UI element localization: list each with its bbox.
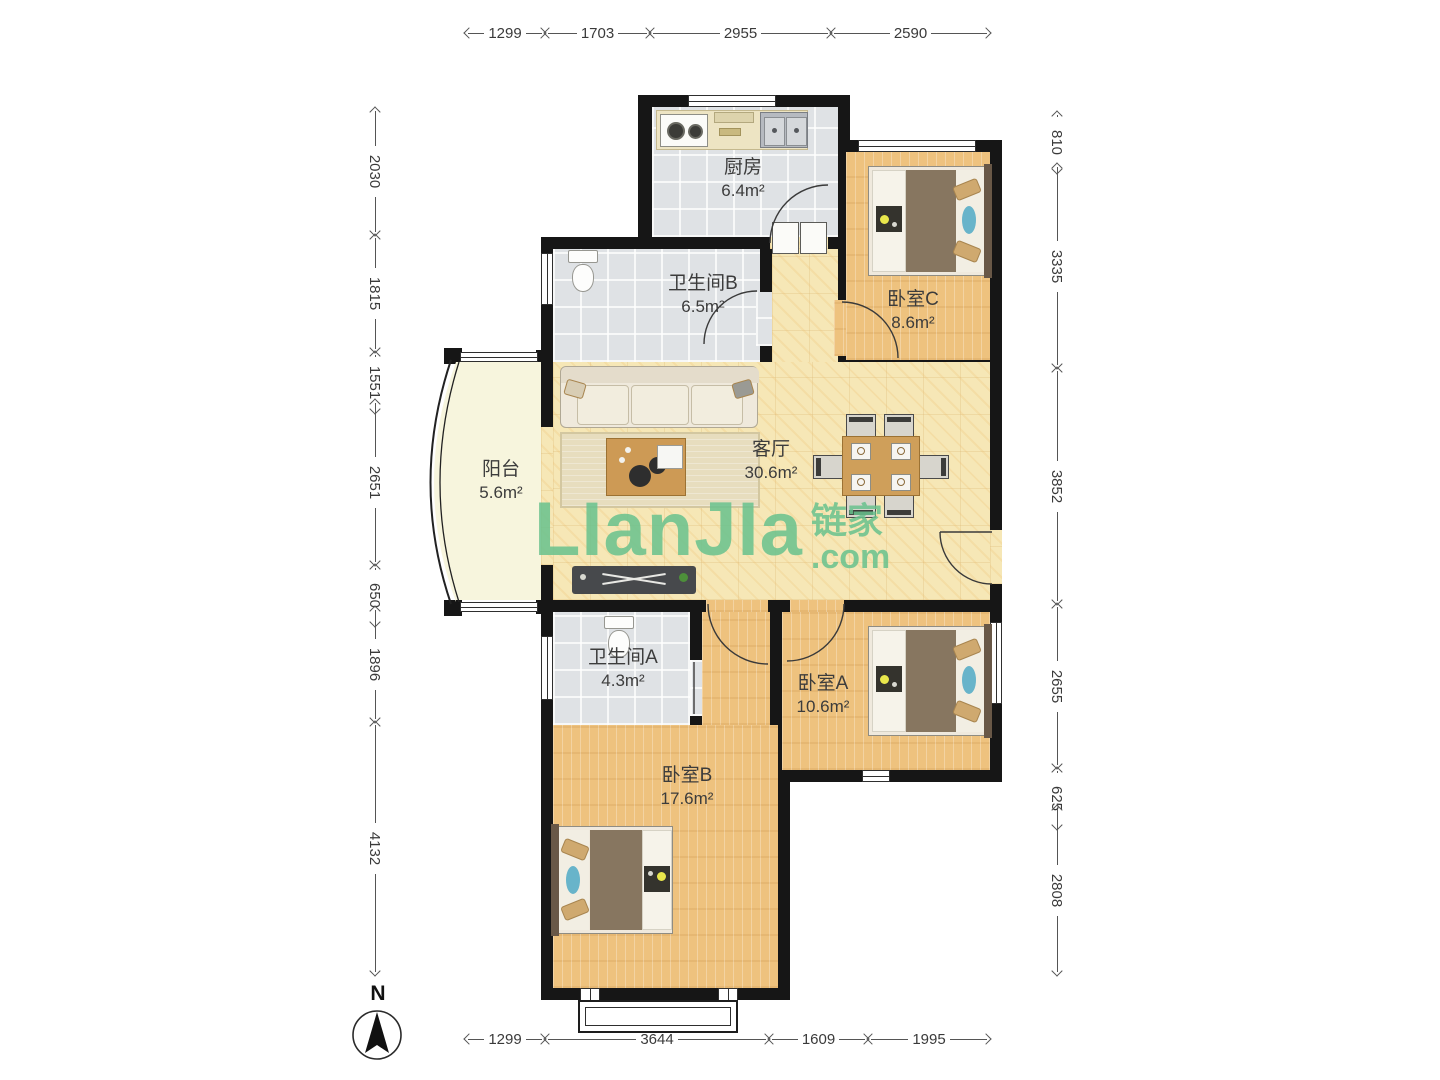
- arrow-down-icon: [369, 965, 380, 976]
- decor-dot: [880, 215, 889, 224]
- dim-value: 2030: [367, 155, 384, 188]
- room-label-bedroom-c: 卧室C 8.6m²: [858, 288, 968, 334]
- arrow-up-icon: [1051, 110, 1062, 121]
- decor-oval: [566, 866, 580, 894]
- sink-icon: [760, 112, 808, 148]
- door-gap: [834, 300, 846, 356]
- dim-value: 2651: [367, 466, 384, 499]
- room-area: 10.6m²: [768, 696, 878, 718]
- place-mat: [891, 474, 911, 491]
- arrow-up-icon: [1051, 804, 1062, 815]
- burner-icon: [688, 124, 703, 139]
- dim-line: [1057, 371, 1058, 461]
- burner-icon: [667, 122, 685, 140]
- room-label-bathroom-b: 卫生间B 6.5m²: [648, 272, 758, 318]
- dim-bottom-0: 1299: [465, 1032, 545, 1046]
- dim-right-4: 625: [1050, 768, 1064, 806]
- headboard: [984, 624, 992, 738]
- arrow-left-icon: [463, 27, 474, 38]
- stove-icon: [660, 114, 708, 147]
- room-area: 17.6m²: [632, 788, 742, 810]
- room-area: 4.3m²: [568, 670, 678, 692]
- dim-value: 2808: [1049, 874, 1066, 907]
- dim-right-5: 2808: [1050, 806, 1064, 975]
- arrow-up-icon: [1051, 162, 1062, 173]
- compass-north-label: N: [364, 982, 392, 1006]
- dim-line: [375, 874, 376, 972]
- dim-line: [1057, 292, 1058, 366]
- room-label-bathroom-a: 卫生间A 4.3m²: [568, 646, 678, 692]
- arrow-down-icon: [1051, 965, 1062, 976]
- watermark-tld: .com: [811, 540, 890, 574]
- dining-chair: [919, 455, 949, 479]
- dim-bottom-1: 3644: [545, 1032, 769, 1046]
- compass-circle: [353, 1011, 401, 1059]
- hall-floor: [702, 612, 770, 725]
- room-name: 卫生间A: [568, 646, 678, 670]
- arrow-up-icon: [369, 605, 380, 616]
- headboard: [984, 164, 992, 278]
- window: [862, 770, 890, 782]
- door-gap: [790, 600, 844, 612]
- headboard: [551, 824, 559, 936]
- dim-right-1: 3335: [1050, 164, 1064, 368]
- arrow-up-icon: [1051, 366, 1062, 377]
- bed-tray: [644, 866, 670, 892]
- dim-line: [1057, 916, 1058, 972]
- dim-value: 1995: [908, 1031, 949, 1048]
- dim-line: [653, 33, 720, 34]
- room-label-balcony: 阳台 5.6m²: [446, 458, 556, 504]
- dim-line: [375, 403, 376, 457]
- dining-chair: [884, 414, 914, 438]
- watermark-cjk: 链家: [811, 502, 890, 540]
- dim-value: 2655: [1049, 669, 1066, 702]
- toilet-icon: [568, 250, 598, 263]
- dim-left-2: 1551: [368, 352, 382, 400]
- dim-line: [1057, 512, 1058, 602]
- dim-value: 1299: [484, 25, 525, 42]
- dim-right-2: 3852: [1050, 368, 1064, 604]
- arrow-up-icon: [369, 106, 380, 117]
- wall: [536, 600, 553, 614]
- sofa: [560, 366, 758, 428]
- dim-value: 3644: [636, 1031, 677, 1048]
- toilet-icon: [572, 264, 594, 292]
- room-name: 客厅: [716, 438, 826, 462]
- dim-left-6: 4132: [368, 722, 382, 975]
- dim-value: 4132: [367, 832, 384, 865]
- dim-line: [678, 1039, 766, 1040]
- dining-chair: [846, 414, 876, 438]
- arrow-up-icon: [369, 350, 380, 361]
- floorplan-canvas: LIanJIa 链家 .com 厨房 6.4m² 卫生间B 6.5m² 卧室C …: [0, 0, 1440, 1080]
- dim-left-4: 650: [368, 565, 382, 607]
- range-hood-icon: [714, 112, 754, 123]
- sofa-cushion: [631, 385, 689, 425]
- window: [460, 602, 538, 612]
- dim-bottom-2: 1609: [769, 1032, 868, 1046]
- dim-value: 1703: [577, 25, 618, 42]
- decor-dot: [880, 675, 889, 684]
- dim-value: 3335: [1049, 249, 1066, 282]
- arrow-up-icon: [369, 233, 380, 244]
- dim-line: [548, 1039, 636, 1040]
- dim-value: 2590: [890, 25, 931, 42]
- room-name: 卫生间B: [648, 272, 758, 296]
- entry-door-gap: [990, 530, 1002, 584]
- bay-window: [578, 1000, 738, 1033]
- room-name: 厨房: [688, 156, 798, 180]
- decor-dot: [657, 872, 666, 881]
- arrow-up-icon: [369, 563, 380, 574]
- hallway-floor: [772, 249, 838, 368]
- door-gap: [706, 600, 768, 612]
- tea-set: [657, 445, 683, 469]
- dim-value: 810: [1049, 130, 1066, 155]
- tray-icon: [629, 465, 651, 487]
- sink-basin: [786, 117, 807, 146]
- decor-dot: [580, 574, 586, 580]
- decor-dot: [892, 222, 897, 227]
- room-area: 6.4m²: [688, 180, 798, 202]
- dim-line: [1057, 809, 1058, 865]
- decor-dot: [619, 457, 625, 463]
- window: [541, 253, 553, 305]
- room-area: 8.6m²: [858, 312, 968, 334]
- kitchen-accessory: [719, 128, 741, 136]
- decor-oval: [962, 666, 976, 694]
- dim-left-0: 2030: [368, 108, 382, 235]
- bed-tray: [876, 666, 902, 692]
- arrow-left-icon: [829, 27, 840, 38]
- place-mat: [851, 443, 871, 460]
- arrow-right-icon: [980, 1033, 991, 1044]
- dim-right-3: 2655: [1050, 604, 1064, 768]
- dim-left-1: 1815: [368, 235, 382, 352]
- dim-line: [1057, 607, 1058, 661]
- compass-needle-icon: [365, 1012, 389, 1053]
- dim-top-3: 2590: [831, 26, 990, 40]
- dim-left-3: 2651: [368, 400, 382, 565]
- arrow-left-icon: [866, 1033, 877, 1044]
- dim-right-0: 810: [1050, 112, 1064, 164]
- dim-line: [1057, 712, 1058, 766]
- door-gap: [690, 660, 702, 716]
- dim-left-5: 1896: [368, 607, 382, 722]
- dining-table: [842, 436, 920, 496]
- dim-line: [834, 33, 890, 34]
- dim-line: [375, 725, 376, 823]
- dim-top-2: 2955: [650, 26, 831, 40]
- arrow-up-icon: [1051, 766, 1062, 777]
- sofa-back: [561, 367, 759, 383]
- arrow-left-icon: [463, 1033, 474, 1044]
- room-area: 30.6m²: [716, 462, 826, 484]
- dim-bottom-3: 1995: [868, 1032, 990, 1046]
- room-name: 阳台: [446, 458, 556, 482]
- dim-value: 2955: [720, 25, 761, 42]
- watermark: LIanJIa 链家 .com: [534, 492, 890, 574]
- room-label-bedroom-a: 卧室A 10.6m²: [768, 672, 878, 718]
- sink-basin: [764, 117, 785, 146]
- dim-top-1: 1703: [545, 26, 650, 40]
- room-area: 6.5m²: [648, 296, 758, 318]
- watermark-brand: LIanJIa: [534, 492, 803, 568]
- window: [858, 140, 976, 152]
- bed-tray: [876, 206, 902, 232]
- dim-value: 3852: [1049, 469, 1066, 502]
- place-mat: [891, 443, 911, 460]
- arrow-up-icon: [1051, 602, 1062, 613]
- room-name: 卧室B: [632, 764, 742, 788]
- room-label-bedroom-b: 卧室B 17.6m²: [632, 764, 742, 810]
- dim-value: 1609: [798, 1031, 839, 1048]
- room-label-living-room: 客厅 30.6m²: [716, 438, 826, 484]
- blanket: [906, 630, 956, 732]
- room-area: 5.6m²: [446, 482, 556, 504]
- dim-line: [761, 33, 828, 34]
- plant-icon: [679, 573, 688, 582]
- arrow-up-icon: [369, 398, 380, 409]
- dim-value: 1299: [484, 1031, 525, 1048]
- dim-value: 1551: [367, 366, 384, 399]
- room-name: 卧室C: [858, 288, 968, 312]
- dim-line: [931, 33, 987, 34]
- dim-line: [1057, 167, 1058, 241]
- dim-value: 650: [367, 583, 384, 608]
- dim-line: [375, 508, 376, 562]
- arrow-left-icon: [767, 1033, 778, 1044]
- decor-dot: [892, 682, 897, 687]
- blanket: [906, 170, 956, 272]
- arrow-up-icon: [369, 720, 380, 731]
- dim-value: 1896: [367, 648, 384, 681]
- decor-dot: [625, 447, 631, 453]
- dim-top-0: 1299: [465, 26, 545, 40]
- decor-oval: [962, 206, 976, 234]
- arrow-left-icon: [648, 27, 659, 38]
- door-leaf: [800, 222, 827, 254]
- door-leaf: [772, 222, 799, 254]
- door-gap: [756, 292, 772, 346]
- room-label-kitchen: 厨房 6.4m²: [688, 156, 798, 202]
- window: [688, 95, 776, 107]
- decor-dot: [648, 871, 653, 876]
- blanket: [590, 830, 642, 930]
- window: [541, 636, 553, 700]
- room-name: 卧室A: [768, 672, 878, 696]
- arrow-left-icon: [543, 1033, 554, 1044]
- toilet-icon: [604, 616, 634, 629]
- window: [460, 352, 538, 362]
- dim-value: 1815: [367, 277, 384, 310]
- arrow-left-icon: [543, 27, 554, 38]
- arrow-right-icon: [980, 27, 991, 38]
- place-mat: [851, 474, 871, 491]
